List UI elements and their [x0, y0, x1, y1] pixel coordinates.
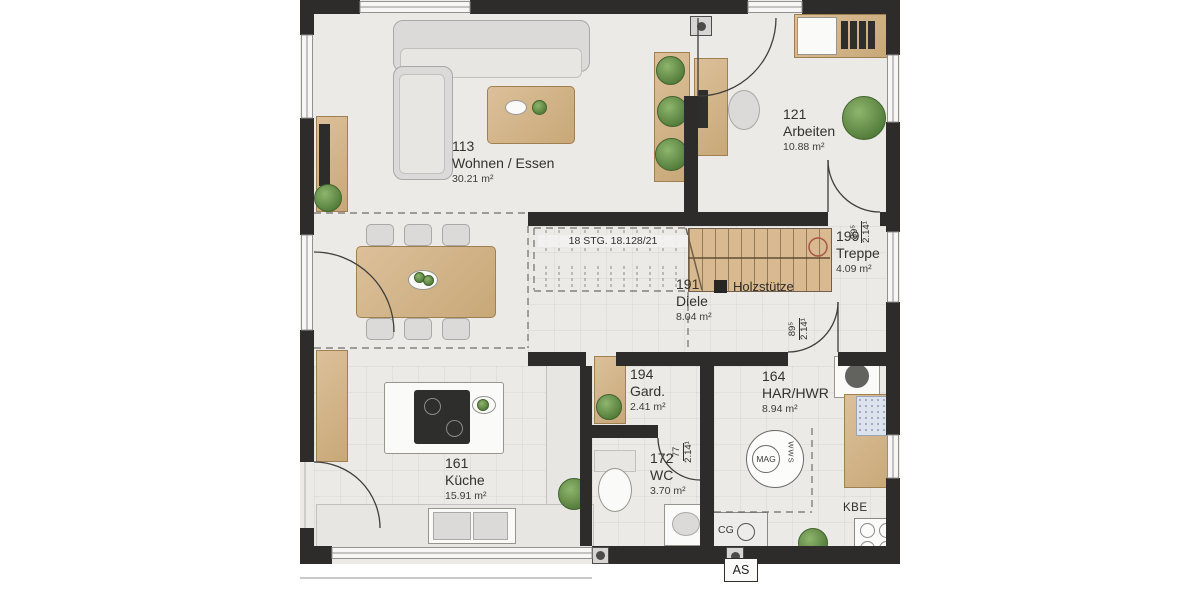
- dim-width: 77: [672, 443, 684, 462]
- stair-note: 18 STG. 18.128/21: [538, 235, 688, 247]
- room-area: 10.88 m²: [783, 140, 835, 154]
- plant-gard: [596, 394, 622, 420]
- cg-label: CG: [718, 524, 734, 536]
- room-area: 2.41 m²: [630, 400, 666, 414]
- room-label-arbeiten: 121 Arbeiten 10.88 m²: [783, 106, 835, 154]
- room-label-gard: 194 Gard. 2.41 m²: [630, 366, 666, 414]
- room-area: 30.21 m²: [452, 172, 554, 186]
- plant-tv: [314, 184, 342, 212]
- stairs-handrail: [688, 257, 830, 259]
- as-outlet-label: AS: [724, 558, 758, 582]
- holzstuetze-square-icon: [714, 280, 727, 293]
- dim-width: 89⁵: [788, 318, 800, 341]
- room-label-har-hwr: 164 HAR/HWR 8.94 m²: [762, 368, 829, 416]
- floorplan-canvas: { "plan": { "rooms": [ {"number":"113","…: [0, 0, 1200, 600]
- door-dimension-treppe: 89⁵ 2.14¹: [850, 204, 872, 260]
- room-area: 8.94 m²: [762, 402, 829, 416]
- door-dimension-hwr: 89⁵ 2.14¹: [788, 301, 810, 357]
- room-label-kueche: 161 Küche 15.91 m²: [445, 455, 486, 503]
- coffee-table: [487, 86, 575, 144]
- room-number: 121: [783, 106, 835, 123]
- holzstuetze-post-kueche: [592, 547, 609, 564]
- legend-holzstuetze: Holzstütze: [714, 279, 794, 294]
- dim-height: 2.14¹: [800, 314, 811, 344]
- holzstuetze-post-top: [690, 16, 712, 36]
- washing-machine-symbol: MAG WWS: [746, 430, 804, 488]
- room-number: 161: [445, 455, 486, 472]
- kbe-label: KBE: [843, 502, 868, 514]
- room-number: 164: [762, 368, 829, 385]
- room-name: HAR/HWR: [762, 385, 829, 402]
- room-label-diele: 191 Diele 8.04 m²: [676, 276, 712, 324]
- room-name: Küche: [445, 472, 486, 489]
- room-number: 113: [452, 138, 554, 155]
- dim-height: 2.14¹: [684, 437, 695, 467]
- room-number: 191: [676, 276, 712, 293]
- room-number: 194: [630, 366, 666, 383]
- room-area: 8.04 m²: [676, 310, 712, 324]
- ironing-pad: [856, 396, 890, 436]
- room-area: 15.91 m²: [445, 489, 486, 503]
- washer-wws-label: WWS: [786, 441, 795, 463]
- tv-icon: [319, 124, 330, 186]
- washer-mag-label: MAG: [752, 445, 780, 473]
- legend-label: Holzstütze: [733, 279, 794, 294]
- dim-height: 2.14¹: [862, 217, 873, 247]
- room-name: Wohnen / Essen: [452, 155, 554, 172]
- room-name: Arbeiten: [783, 123, 835, 140]
- plant-shelf-1: [656, 56, 685, 85]
- cg-ring-icon: [737, 523, 755, 541]
- door-dimension-wc: 77 2.14¹: [672, 424, 694, 480]
- coffee-table-dish: [505, 100, 527, 115]
- dim-width: 89⁵: [850, 221, 862, 244]
- room-name: Diele: [676, 293, 712, 310]
- heater-dial: [845, 364, 869, 388]
- room-name: Gard.: [630, 383, 666, 400]
- room-area: 4.09 m²: [836, 262, 880, 276]
- room-label-wohnen-essen: 113 Wohnen / Essen 30.21 m²: [452, 138, 554, 186]
- coffee-table-plant: [532, 100, 547, 115]
- room-area: 3.70 m²: [650, 484, 686, 498]
